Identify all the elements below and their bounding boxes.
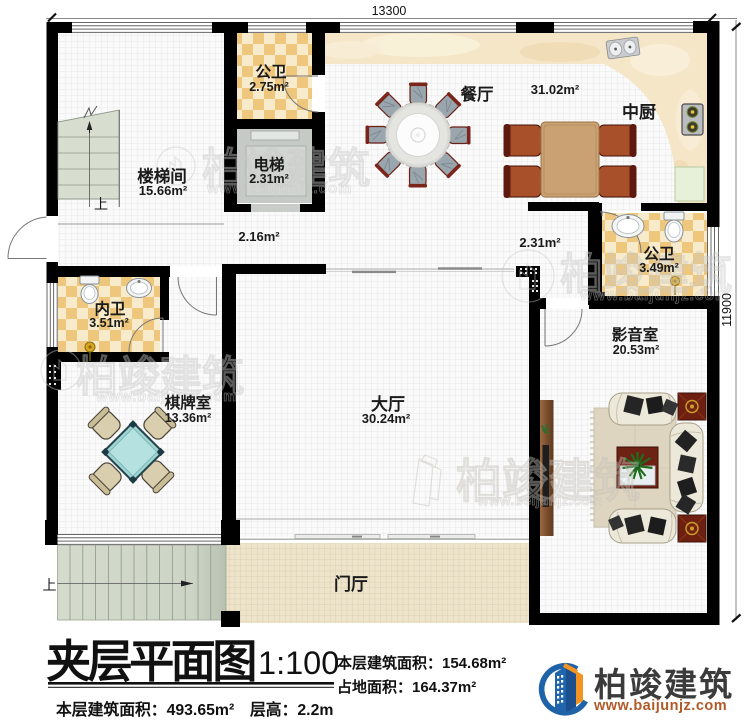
svg-text:门厅: 门厅: [334, 574, 368, 594]
svg-text:3.51m²: 3.51m²: [89, 316, 129, 330]
svg-text:2.31m²: 2.31m²: [519, 235, 561, 250]
svg-text:中厨: 中厨: [622, 102, 656, 122]
svg-text:棋牌室: 棋牌室: [165, 393, 212, 412]
svg-text:2.16m²: 2.16m²: [238, 229, 280, 244]
svg-text:13300: 13300: [372, 4, 407, 18]
svg-text:占地面积：164.37m²: 占地面积：164.37m²: [337, 678, 476, 696]
svg-text:上: 上: [43, 577, 57, 593]
svg-text:11900: 11900: [720, 293, 734, 327]
svg-text:影音室: 影音室: [612, 325, 659, 344]
svg-text:3.49m²: 3.49m²: [639, 261, 679, 275]
svg-text:www.beijunjz.com: www.beijunjz.com: [477, 493, 603, 508]
svg-text:夹层平面图: 夹层平面图: [46, 636, 254, 687]
svg-text:本层建筑面积：154.68m²: 本层建筑面积：154.68m²: [337, 654, 506, 672]
svg-text:31.02m²: 31.02m²: [531, 82, 580, 97]
svg-text:15.66m²: 15.66m²: [139, 183, 188, 198]
svg-text:30.24m²: 30.24m²: [362, 411, 411, 426]
svg-text:2.31m²: 2.31m²: [249, 172, 289, 186]
svg-text:本层建筑面积：493.65m² 层高：2.2m: 本层建筑面积：493.65m² 层高：2.2m: [56, 700, 333, 719]
svg-text:公卫: 公卫: [255, 63, 287, 81]
svg-text:1:100: 1:100: [258, 645, 339, 681]
svg-text:20.53m²: 20.53m²: [613, 343, 660, 357]
svg-text:上: 上: [94, 196, 108, 212]
svg-text:www.baijunjz.com: www.baijunjz.com: [579, 287, 730, 304]
svg-text:餐厅: 餐厅: [461, 84, 495, 104]
svg-text:www.baijunjz.com: www.baijunjz.com: [593, 698, 727, 714]
svg-text:13.36m²: 13.36m²: [165, 411, 212, 425]
svg-text:2.75m²: 2.75m²: [249, 80, 289, 94]
